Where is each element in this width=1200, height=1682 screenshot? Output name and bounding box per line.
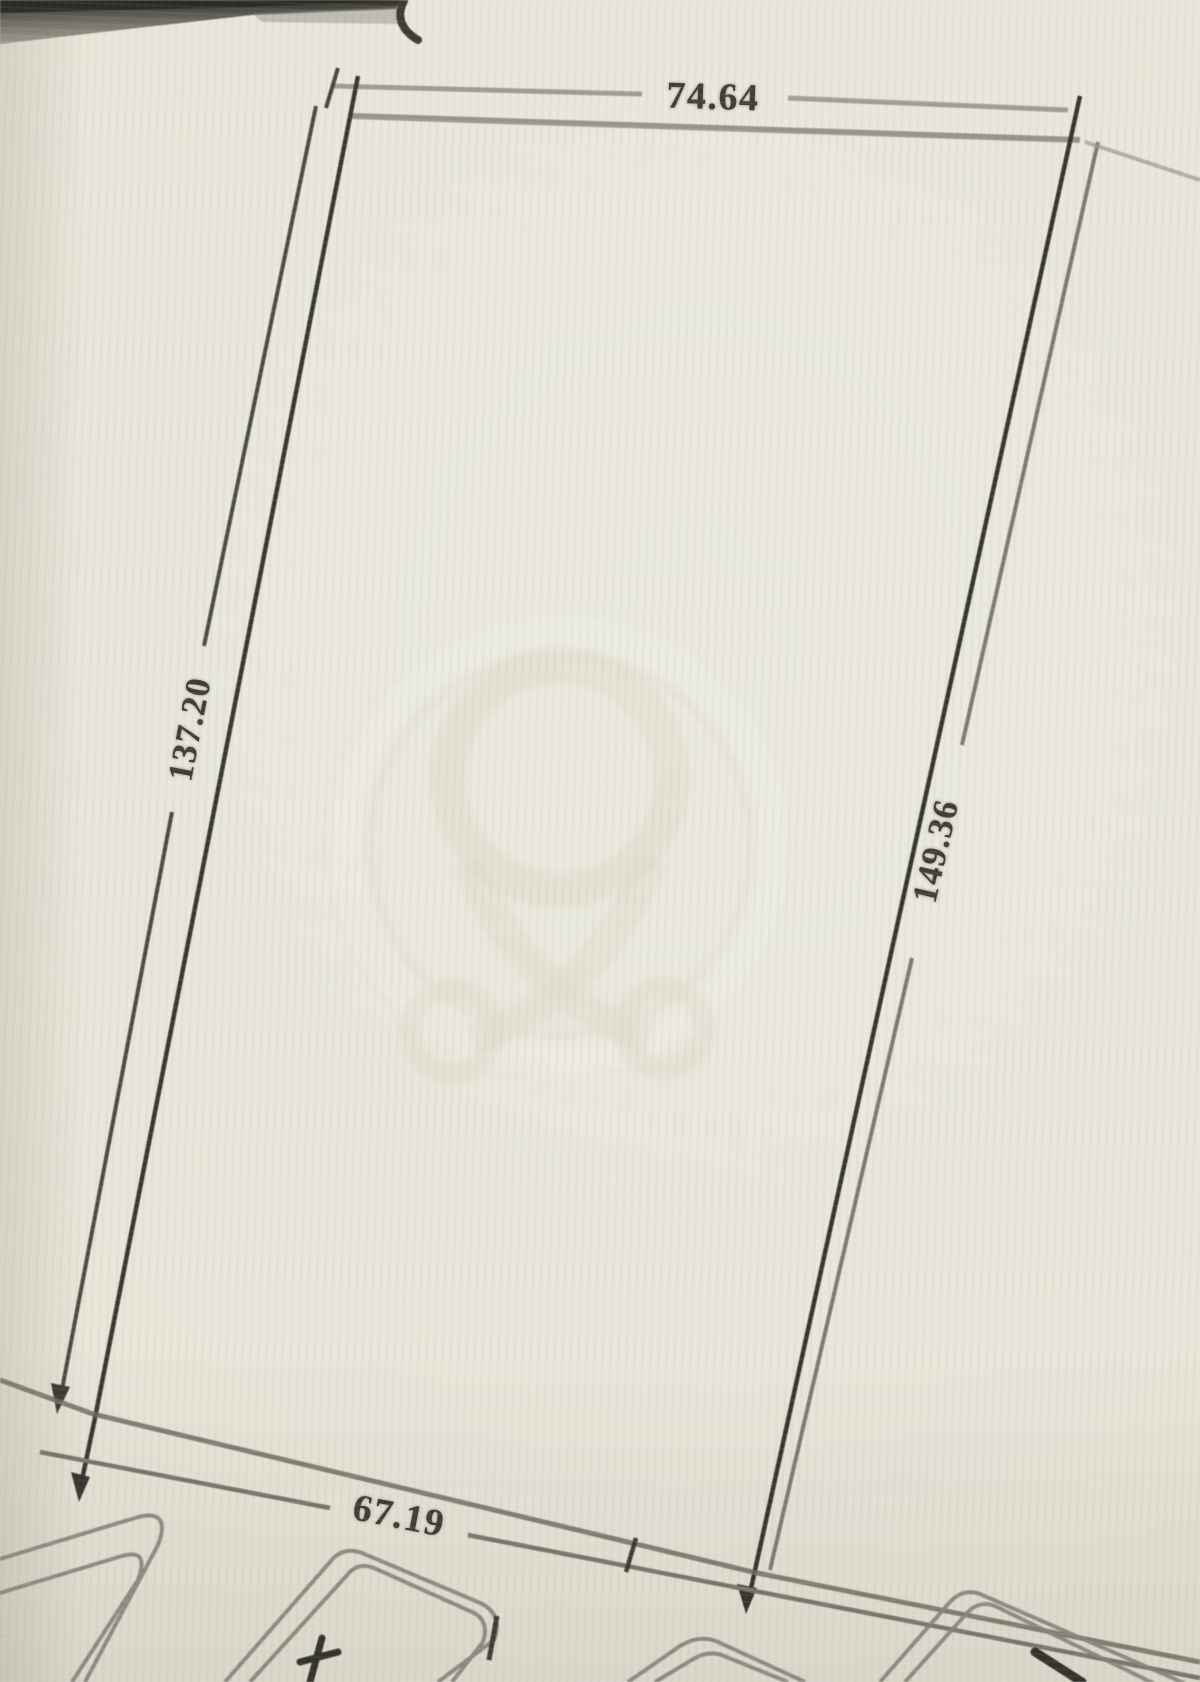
bottom-dimension-line-right-segment — [468, 1535, 1200, 1678]
adjacent-boundary-extension-top-right — [1085, 142, 1200, 180]
right-dimension-line-upper-segment — [962, 142, 1098, 745]
parcel-line-drawing — [0, 0, 1200, 1682]
left-boundary-line — [79, 76, 358, 1494]
neighbor-parcel-bottom-right-inner — [655, 1653, 788, 1682]
top-dimension-line-right-segment — [788, 98, 1068, 110]
right-boundary-line — [748, 96, 1080, 1602]
neighbor-parcel-bottom-right-outer — [628, 1639, 805, 1682]
top-boundary-line — [352, 116, 1080, 140]
neighbor-parcel-center — [225, 1551, 497, 1682]
right-dimension-line-lower-segment — [770, 958, 912, 1570]
neighbor-parcel-bottom-right — [628, 1639, 805, 1682]
pen-mark-bottom-center — [300, 1638, 338, 1682]
pen-mark-bottom-right — [1035, 1652, 1082, 1682]
left-boundary-arrowhead — [71, 1472, 90, 1502]
scanned-survey-page: 74.64 137.20 149.36 67.19 — [0, 0, 1200, 1682]
neighbor-parcel-center-inner — [250, 1566, 485, 1682]
dimension-label-top: 74.64 — [666, 74, 760, 121]
neighbor-parcel-left-outer — [0, 1516, 162, 1682]
neighbor-parcel-left — [0, 1516, 162, 1682]
pen-mark-top — [400, 1, 418, 40]
top-dimension-line-left-segment — [332, 86, 642, 94]
